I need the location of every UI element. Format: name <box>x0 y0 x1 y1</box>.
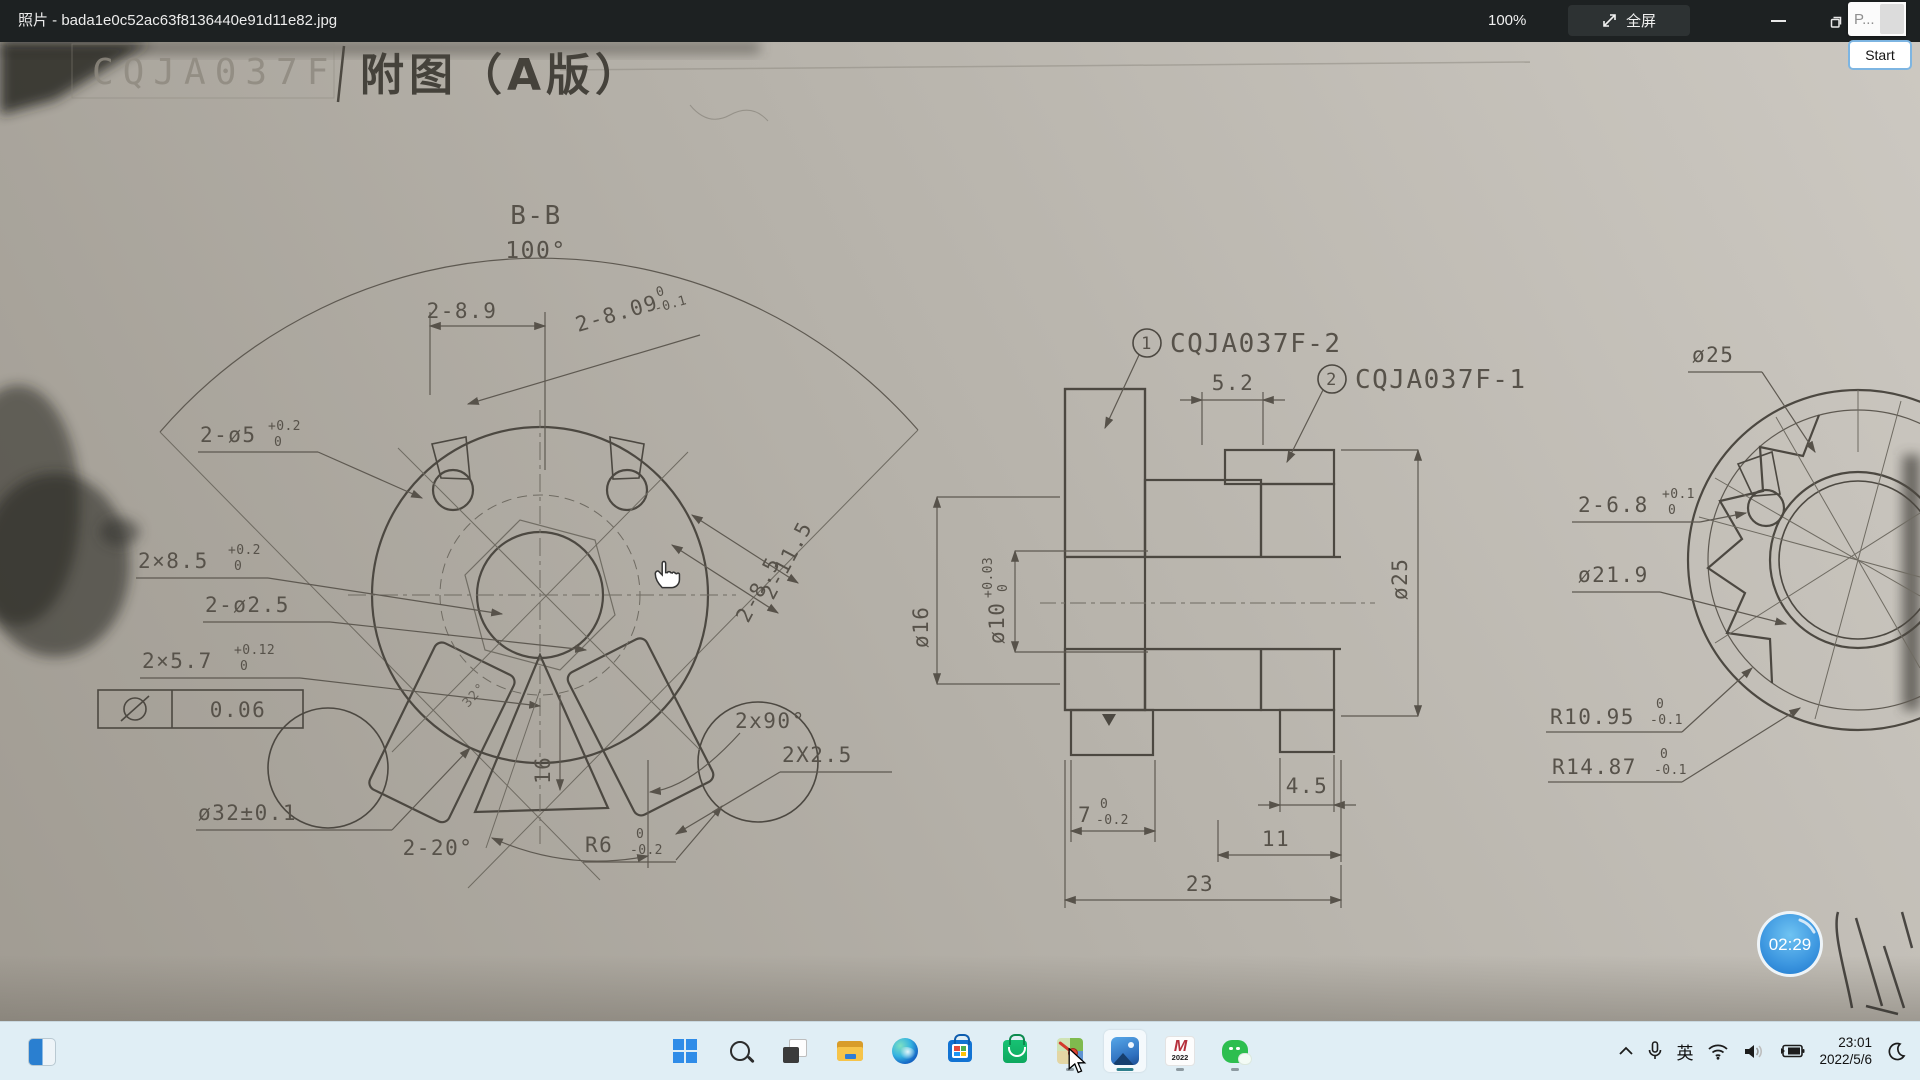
hidden-icons-chevron[interactable] <box>1618 1046 1634 1056</box>
tray-date: 2022/5/6 <box>1819 1051 1872 1068</box>
wifi-icon[interactable] <box>1707 1043 1729 1060</box>
windows-logo-icon <box>673 1039 697 1063</box>
dim-16: 16 <box>531 756 555 784</box>
m-2022-app-button[interactable]: M 2022 <box>1159 1030 1201 1072</box>
green-bag-store-button[interactable] <box>994 1030 1036 1072</box>
running-indicator <box>1176 1068 1184 1071</box>
svg-text:0: 0 <box>1656 697 1664 712</box>
tray-clock[interactable]: 23:01 2022/5/6 <box>1819 1034 1872 1068</box>
focus-assist-moon-icon[interactable] <box>1886 1041 1906 1061</box>
svg-text:0: 0 <box>234 559 242 574</box>
battery-icon[interactable] <box>1779 1043 1805 1059</box>
svg-text:-0.2: -0.2 <box>630 843 663 858</box>
svg-text:1: 1 <box>1141 334 1153 354</box>
microsoft-store-button[interactable] <box>939 1030 981 1072</box>
ime-indicator[interactable]: 英 <box>1676 1039 1693 1064</box>
mouse-arrow-cursor <box>1066 1048 1088 1074</box>
system-tray: 英 23:01 2022/5/6 <box>1618 1022 1906 1080</box>
notification-text: P... <box>1848 11 1880 28</box>
search-icon <box>730 1041 750 1061</box>
dim-2x5-7: 2×5.7 <box>142 649 213 673</box>
title-bar: 照片 - bada1e0c52ac63f8136440e91d11e82.jpg… <box>0 0 1920 42</box>
svg-text:0: 0 <box>636 827 644 842</box>
svg-text:0: 0 <box>996 584 1011 592</box>
running-indicator <box>1231 1068 1239 1071</box>
fullscreen-icon <box>1602 13 1617 28</box>
m-2022-icon: M 2022 <box>1165 1036 1195 1066</box>
green-bag-icon <box>1003 1040 1027 1063</box>
dim-11: 11 <box>1262 827 1290 851</box>
tolerance-value: 0.06 <box>210 698 267 722</box>
minimize-button[interactable] <box>1756 0 1800 42</box>
search-button[interactable] <box>719 1030 761 1072</box>
paper-background <box>0 42 1920 1022</box>
dim-5-2: 5.2 <box>1212 371 1254 395</box>
store-icon <box>948 1040 972 1062</box>
dim-2-20: 2-20° <box>403 836 474 860</box>
dim-o25-right: ø25 <box>1692 343 1734 367</box>
dim-o16: ø16 <box>909 606 933 648</box>
dim-4-5: 4.5 <box>1286 774 1328 798</box>
dim-r10-95: R10.95 <box>1550 705 1635 729</box>
tray-time: 23:01 <box>1819 1034 1872 1051</box>
svg-text:-0.2: -0.2 <box>1096 813 1129 828</box>
drawing-code: CQJA037F <box>92 52 337 93</box>
file-explorer-button[interactable] <box>829 1030 871 1072</box>
notification-popup[interactable]: P... <box>1848 2 1906 36</box>
svg-text:0: 0 <box>1668 503 1676 518</box>
svg-text:+0.2: +0.2 <box>228 543 261 558</box>
photos-app-button[interactable] <box>1104 1030 1146 1072</box>
minimize-icon <box>1771 20 1786 22</box>
svg-text:0: 0 <box>274 435 282 450</box>
start-recording-button[interactable]: Start <box>1848 40 1912 70</box>
zoom-level: 100% <box>1488 0 1526 42</box>
timer-value: 02:29 <box>1769 935 1812 954</box>
dim-o25-mid: ø25 <box>1388 558 1412 600</box>
dim-2-o5: 2-ø5 <box>200 423 257 447</box>
svg-text:0: 0 <box>1660 747 1668 762</box>
active-indicator <box>1117 1068 1134 1071</box>
svg-text:ø10: ø10 <box>985 602 1009 644</box>
svg-text:-0.1: -0.1 <box>1650 713 1683 728</box>
dim-2-8-9: 2-8.9 <box>427 299 498 323</box>
dim-23: 23 <box>1186 872 1214 896</box>
speaker-icon[interactable] <box>1743 1043 1765 1060</box>
wechat-icon <box>1222 1040 1248 1063</box>
dim-2x2-5: 2X2.5 <box>782 743 853 767</box>
dim-2-o2-5: 2-ø2.5 <box>205 593 290 617</box>
dim-o21-9: ø21.9 <box>1578 563 1649 587</box>
task-view-icon <box>783 1039 807 1063</box>
svg-text:+0.2: +0.2 <box>268 419 301 434</box>
fan-angle-label: 100° <box>505 238 566 264</box>
dim-2x90: 2x90° <box>735 709 806 733</box>
svg-text:+0.03: +0.03 <box>981 557 996 598</box>
task-view-button[interactable] <box>774 1030 816 1072</box>
svg-text:+0.12: +0.12 <box>234 643 275 658</box>
edge-icon <box>892 1038 918 1064</box>
start-button-label: Start <box>1865 47 1895 63</box>
start-button[interactable] <box>664 1030 706 1072</box>
wechat-button[interactable] <box>1214 1030 1256 1072</box>
dim-r14-87: R14.87 <box>1552 755 1637 779</box>
recording-timer[interactable]: 02:29 <box>1757 911 1823 977</box>
screen: { "window": { "title": "照片 - bada1e0c52a… <box>0 0 1920 1080</box>
part2-label: CQJA037F-1 <box>1355 365 1527 395</box>
notification-thumb <box>1880 4 1904 34</box>
fullscreen-button[interactable]: 全屏 <box>1568 5 1690 36</box>
photos-icon <box>1111 1037 1139 1065</box>
section-label: B-B <box>510 201 561 231</box>
fullscreen-label: 全屏 <box>1626 10 1656 31</box>
dim-2-6-8: 2-6.8 <box>1578 493 1649 517</box>
folder-icon <box>837 1041 863 1061</box>
dim-2x8-5: 2×8.5 <box>138 549 209 573</box>
restore-icon <box>1829 14 1844 29</box>
taskbar: M 2022 英 <box>0 1021 1920 1080</box>
svg-text:+0.1: +0.1 <box>1662 487 1695 502</box>
svg-text:2: 2 <box>1326 370 1338 390</box>
edge-button[interactable] <box>884 1030 926 1072</box>
svg-text:0: 0 <box>240 659 248 674</box>
window-title: 照片 - bada1e0c52ac63f8136440e91d11e82.jpg <box>18 0 337 42</box>
svg-text:-0.1: -0.1 <box>1654 763 1687 778</box>
part1-label: CQJA037F-2 <box>1170 329 1342 359</box>
photo-canvas: CQJA037F 附图（A版） B-B 100° 2-8.9 <box>0 42 1920 1022</box>
svg-text:0: 0 <box>1100 797 1108 812</box>
sheet-title: 附图（A版） <box>360 50 644 101</box>
dim-7: 7 <box>1078 803 1092 827</box>
dim-o32: ø32±0.1 <box>198 801 297 825</box>
dim-r6: R6 <box>585 833 613 857</box>
microphone-icon[interactable] <box>1648 1041 1662 1061</box>
